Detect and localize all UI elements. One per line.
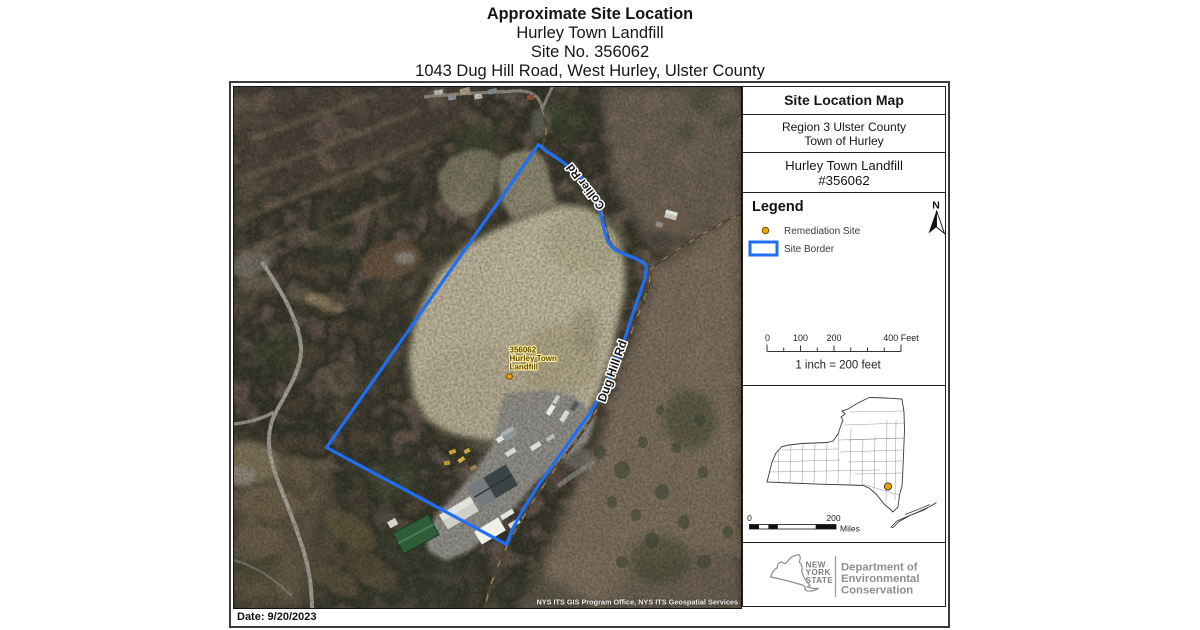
svg-text:Site Border: Site Border [784, 244, 835, 255]
svg-text:0: 0 [747, 513, 752, 523]
svg-text:200: 200 [826, 513, 840, 523]
svg-text:Conservation: Conservation [841, 585, 913, 597]
svg-text:N: N [932, 200, 940, 212]
svg-text:100: 100 [793, 333, 808, 343]
svg-text:400 Feet: 400 Feet [883, 333, 919, 343]
svg-text:0: 0 [765, 333, 770, 343]
svg-text:200: 200 [826, 333, 841, 343]
svg-text:Miles: Miles [840, 524, 860, 534]
svg-text:Remediation Site: Remediation Site [784, 226, 861, 237]
svg-text:Department of: Department of [841, 562, 918, 574]
svg-text:STATE: STATE [806, 576, 834, 585]
svg-text:1 inch = 200 feet: 1 inch = 200 feet [795, 360, 881, 372]
svg-text:Environmental: Environmental [841, 573, 919, 585]
